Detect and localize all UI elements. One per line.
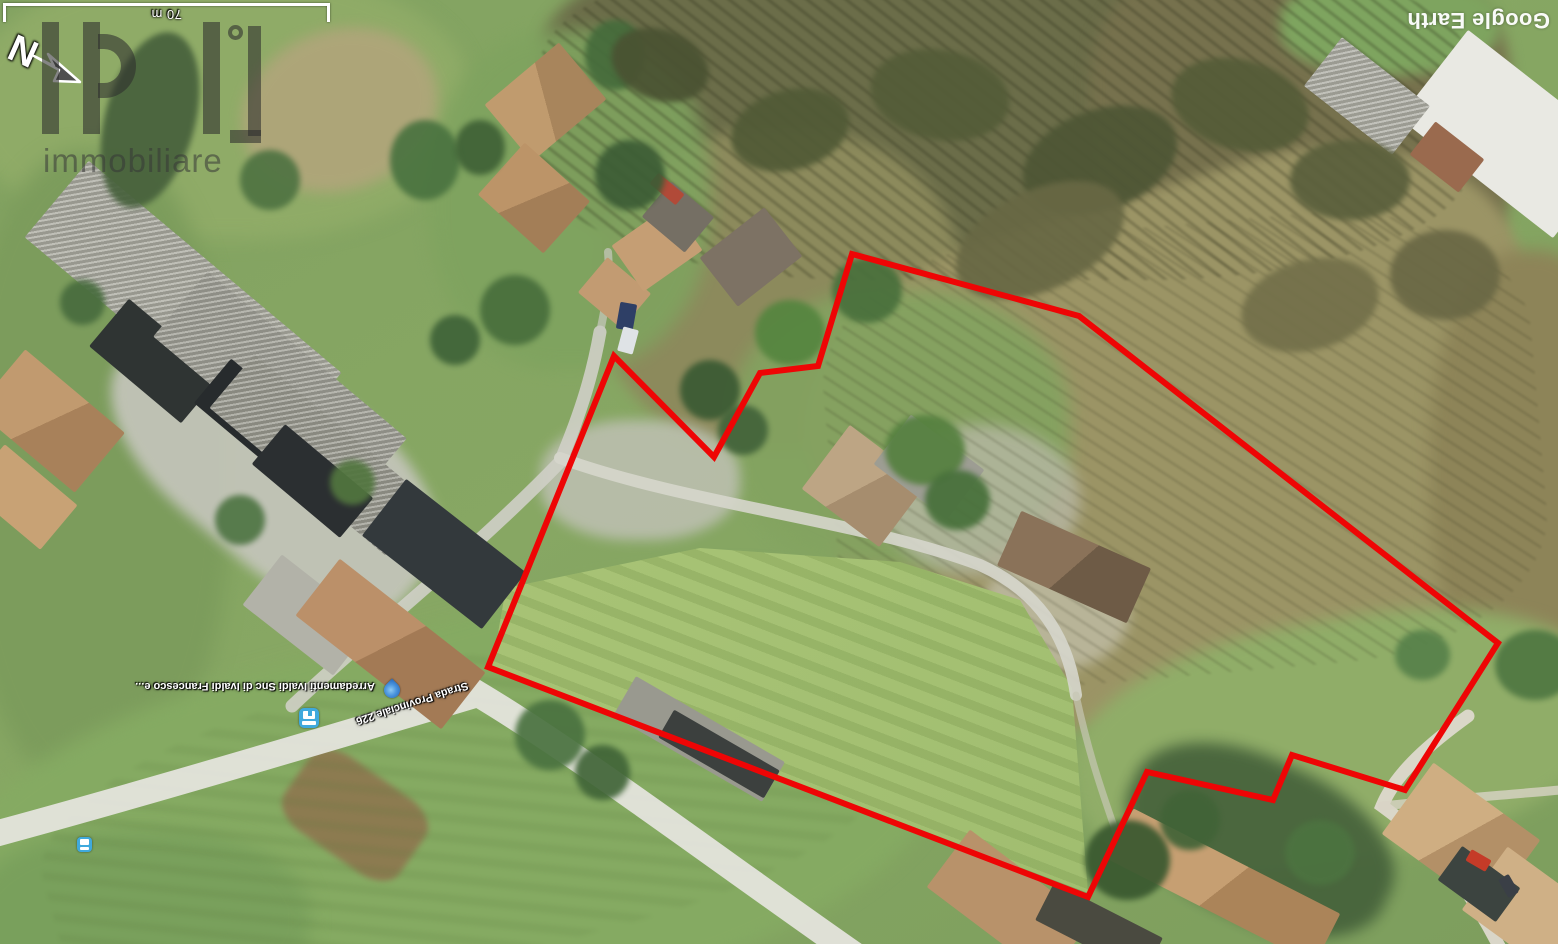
store-poi-icon[interactable] — [299, 708, 319, 728]
logo-bracket-stem — [248, 26, 261, 136]
logo-letter-i — [42, 22, 59, 134]
logo-subtext: immobiliare — [43, 142, 223, 180]
store-body — [303, 711, 315, 719]
business-label[interactable]: Arredamenti Ivaldi Snc di Ivaldi Frances… — [95, 680, 415, 692]
logo-letter-p-bowl — [98, 34, 136, 98]
parcel-outline[interactable] — [488, 254, 1498, 897]
logo-ring — [228, 25, 243, 40]
map-viewport[interactable]: 70 m N immobiliare Google Earth Arredame… — [0, 0, 1558, 944]
bus-stop-poi-icon[interactable] — [77, 837, 92, 852]
bus-body — [80, 839, 89, 845]
google-earth-watermark: Google Earth — [1407, 7, 1550, 33]
store-door — [308, 711, 312, 716]
logo-bracket-foot — [230, 130, 261, 143]
logo-letter-i2 — [203, 22, 220, 134]
bus-top — [80, 847, 89, 850]
ipi-logo-watermark: immobiliare — [40, 20, 280, 180]
store-awning — [302, 721, 316, 725]
